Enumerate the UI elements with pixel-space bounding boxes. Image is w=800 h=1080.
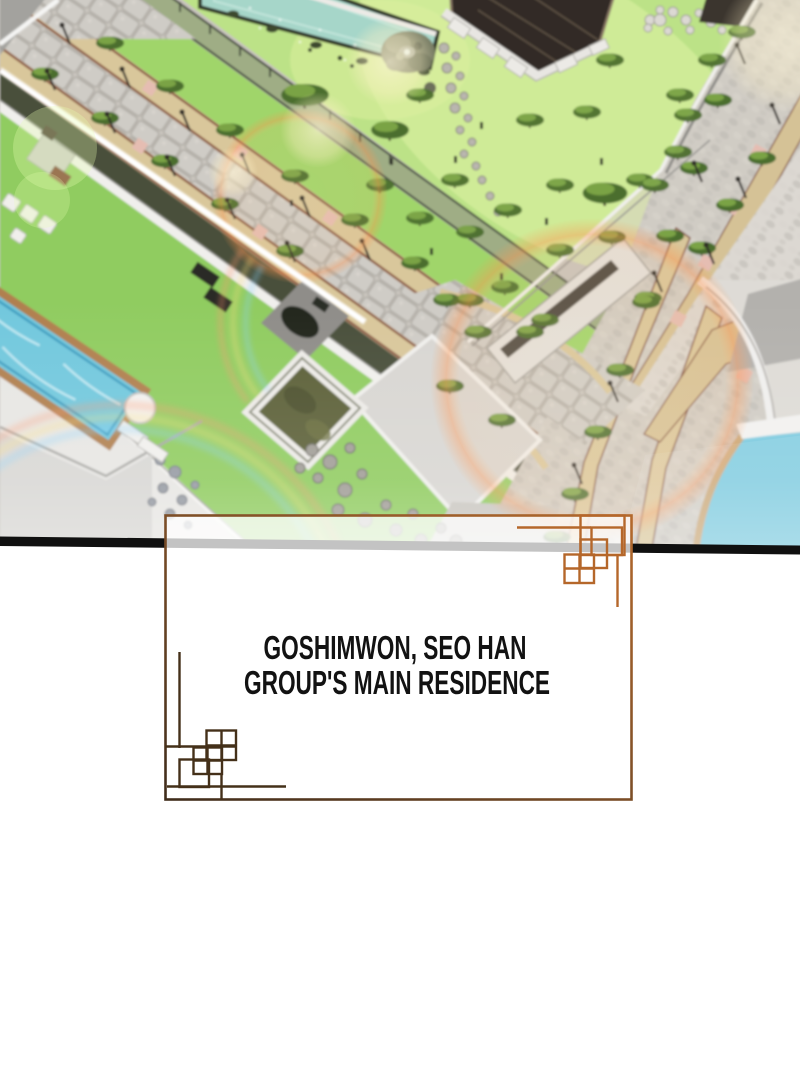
svg-text:GOSHIMWON, SEO HAN: GOSHIMWON, SEO HAN — [264, 630, 527, 668]
svg-text:GROUP'S MAIN RESIDENCE: GROUP'S MAIN RESIDENCE — [244, 665, 550, 703]
